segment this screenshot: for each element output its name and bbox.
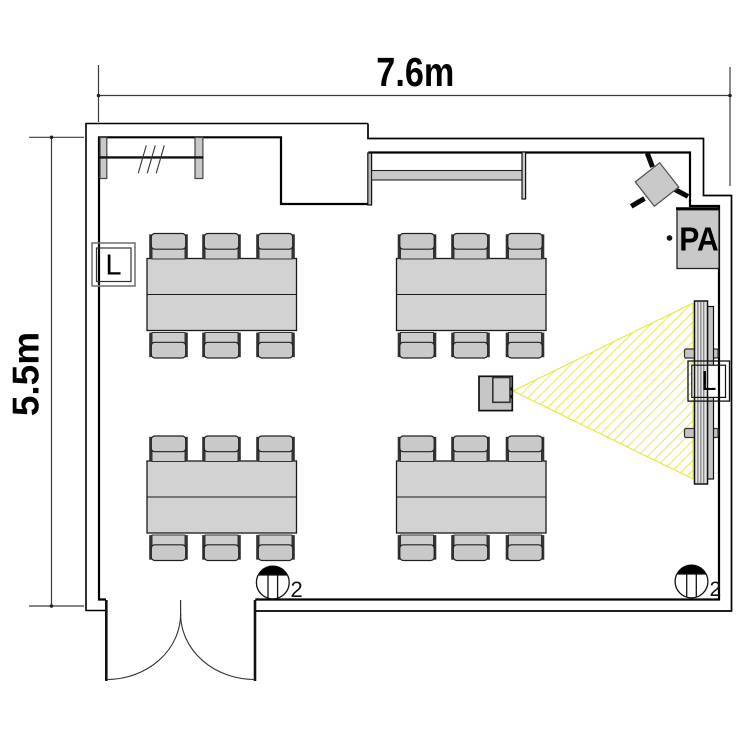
svg-text:L: L <box>105 250 121 282</box>
svg-text:2: 2 <box>291 577 303 602</box>
svg-text:2: 2 <box>710 578 722 601</box>
svg-text:PA: PA <box>679 221 719 258</box>
svg-text:5.5m: 5.5m <box>5 332 46 416</box>
svg-text:L: L <box>701 365 716 396</box>
svg-text:7.6m: 7.6m <box>376 49 454 95</box>
